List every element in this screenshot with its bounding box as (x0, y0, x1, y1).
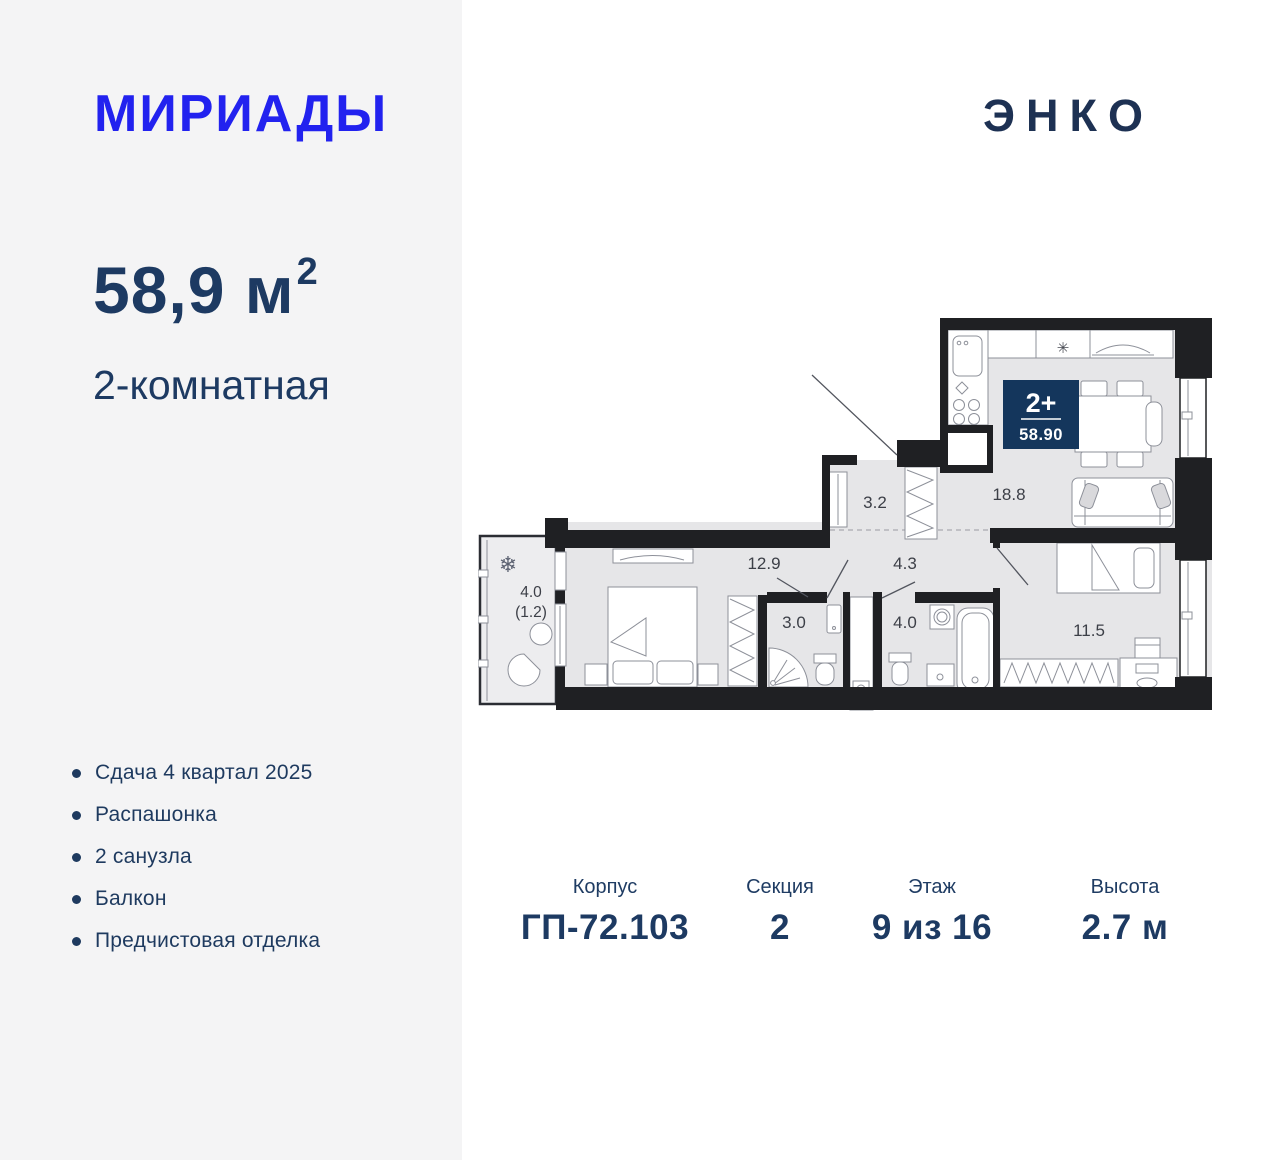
feature-text: Балкон (95, 887, 167, 911)
floor-plan: ❄ ✳ 2+ 58.90 3.2 18.8 12.9 4.3 3.0 4.0 1… (478, 312, 1218, 712)
bullet-dot-icon (72, 895, 81, 904)
bullet-dot-icon (72, 811, 81, 820)
badge-area: 58.90 (1019, 426, 1063, 444)
room-label-corridor: 4.3 (893, 554, 917, 573)
room-label-bedroom2: 11.5 (1073, 621, 1105, 640)
apartment-area: 58,9 м2 (93, 252, 317, 328)
room-label-balcony: 4.0 (520, 584, 542, 601)
detail-value: 2.7 м (1082, 908, 1169, 948)
room-label-balcony-reduced: (1.2) (515, 604, 547, 621)
feature-text: 2 санузла (95, 845, 192, 869)
room-label-bedroom: 12.9 (747, 554, 780, 573)
feature-text: Предчистовая отделка (95, 929, 320, 953)
kitchen-star-icon: ✳ (1057, 340, 1070, 357)
feature-item: Балкон (72, 878, 320, 920)
detail-section: Секция 2 (746, 876, 814, 948)
snowflake-icon: ❄ (499, 552, 517, 577)
detail-label: Этаж (908, 876, 956, 899)
feature-item: Распашонка (72, 794, 320, 836)
room-label-bathroom: 4.0 (893, 613, 917, 632)
floor-plan-svg: ❄ ✳ 2+ 58.90 3.2 18.8 12.9 4.3 3.0 4.0 1… (478, 312, 1218, 712)
room-label-shower: 3.0 (782, 613, 806, 632)
bullet-dot-icon (72, 937, 81, 946)
room-label-kitchen-living: 18.8 (992, 485, 1025, 504)
area-superscript: 2 (297, 251, 319, 293)
detail-height: Высота 2.7 м (1082, 876, 1169, 948)
bullet-dot-icon (72, 769, 81, 778)
detail-value: 9 из 16 (872, 908, 992, 948)
developer-logo: ЭНКО (983, 90, 1154, 142)
room-label-hallway: 3.2 (863, 493, 887, 512)
detail-value: ГП-72.103 (521, 908, 689, 948)
apartment-details: Корпус ГП-72.103 Секция 2 Этаж 9 из 16 В… (480, 876, 1216, 948)
detail-label: Секция (746, 876, 814, 899)
bullet-dot-icon (72, 853, 81, 862)
left-panel (0, 0, 462, 1160)
area-value: 58,9 м (93, 253, 295, 327)
detail-label: Высота (1091, 876, 1160, 899)
feature-item: 2 санузла (72, 836, 320, 878)
detail-floor: Этаж 9 из 16 (872, 876, 992, 948)
feature-item: Предчистовая отделка (72, 920, 320, 962)
detail-label: Корпус (573, 876, 638, 899)
feature-list: Сдача 4 квартал 2025 Распашонка 2 санузл… (72, 752, 320, 962)
feature-text: Сдача 4 квартал 2025 (95, 761, 312, 785)
detail-building: Корпус ГП-72.103 (521, 876, 689, 948)
apartment-type: 2-комнатная (93, 362, 330, 409)
feature-text: Распашонка (95, 803, 217, 827)
feature-item: Сдача 4 квартал 2025 (72, 752, 320, 794)
detail-value: 2 (770, 908, 790, 948)
badge-rooms: 2+ (1026, 388, 1057, 418)
project-logo: МИРИАДЫ (94, 84, 388, 144)
